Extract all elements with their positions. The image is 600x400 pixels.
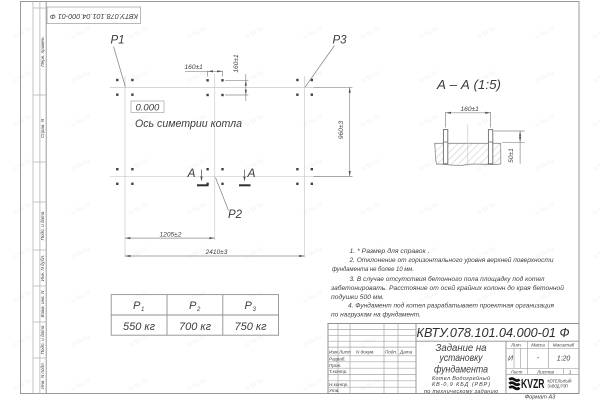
- svg-text:KVZR: KVZR: [521, 377, 545, 391]
- svg-text:А: А: [247, 166, 256, 180]
- svg-text:Инв. N дубл.: Инв. N дубл.: [40, 255, 45, 282]
- svg-text:4. Фундамент под котел разраба: 4. Фундамент под котел разрабатывает про…: [348, 302, 554, 310]
- svg-text:Т.контр.: Т.контр.: [329, 369, 348, 374]
- svg-text:750 кг: 750 кг: [234, 321, 267, 333]
- svg-text:Справ. N: Справ. N: [40, 118, 45, 138]
- svg-text:Котел Водогрейный: Котел Водогрейный: [432, 375, 490, 382]
- svg-text:забетонировать. Расстояние от: забетонировать. Расстояние от осей крайн…: [330, 284, 564, 292]
- svg-text:Утв.: Утв.: [329, 388, 339, 393]
- svg-text:P: P: [133, 300, 141, 312]
- svg-text:Перв. примен.: Перв. примен.: [40, 36, 45, 67]
- svg-text:фундамента не более 10 мм.: фундамента не более 10 мм.: [332, 265, 414, 273]
- svg-text:550 кг: 550 кг: [123, 321, 156, 333]
- svg-text:0.000: 0.000: [136, 102, 160, 113]
- svg-text:1205±2: 1205±2: [160, 231, 182, 238]
- svg-text:P3: P3: [333, 35, 348, 47]
- svg-text:Взам. инв. N: Взам. инв. N: [40, 290, 45, 317]
- svg-text:Подп. и дата: Подп. и дата: [40, 325, 45, 354]
- svg-text:Лит.: Лит.: [510, 343, 522, 348]
- svg-text:КВТУ.078.101.04.000-01 Ф: КВТУ.078.101.04.000-01 Ф: [417, 326, 570, 340]
- svg-text:Лист: Лист: [338, 350, 351, 355]
- svg-text:А: А: [187, 166, 196, 180]
- svg-text:фундамента: фундамента: [434, 364, 488, 376]
- svg-text:Изм.: Изм.: [329, 350, 339, 355]
- svg-text:А – А (1:5): А – А (1:5): [436, 77, 501, 92]
- svg-text:960±3: 960±3: [338, 121, 345, 140]
- svg-text:N докум.: N докум.: [356, 350, 375, 355]
- svg-text:160±1: 160±1: [461, 106, 480, 113]
- svg-text:Н.контр.: Н.контр.: [329, 382, 348, 387]
- svg-text:P: P: [189, 300, 197, 312]
- svg-text:1:20: 1:20: [557, 356, 571, 363]
- svg-text:ЗАВОД РЭП: ЗАВОД РЭП: [548, 384, 569, 389]
- svg-text:P1: P1: [111, 35, 125, 47]
- svg-text:по нагрузкам на фундамент.: по нагрузкам на фундамент.: [331, 310, 421, 318]
- svg-text:Лист: Лист: [510, 369, 523, 374]
- svg-text:КВТУ.078.101.04.000-01 Ф: КВТУ.078.101.04.000-01 Ф: [50, 12, 138, 21]
- svg-text:1: 1: [141, 307, 144, 313]
- svg-text:1: 1: [569, 369, 572, 374]
- svg-text:2. Отклонение от горизонтально: 2. Отклонение от горизонтального уровня …: [349, 256, 554, 264]
- svg-text:КОТЕЛЬНЫЙ: КОТЕЛЬНЫЙ: [548, 378, 572, 383]
- svg-text:Разраб.: Разраб.: [329, 356, 346, 361]
- svg-text:Ось симетрии котла: Ось симетрии котла: [135, 118, 242, 130]
- svg-text:50±1: 50±1: [508, 148, 515, 163]
- svg-text:Листов: Листов: [536, 369, 554, 374]
- svg-text:Подп. и дата: Подп. и дата: [40, 211, 45, 240]
- svg-text:Масштаб: Масштаб: [553, 343, 575, 348]
- svg-text:Пров.: Пров.: [329, 363, 341, 368]
- svg-text:3. В случае отсутствия бетонно: 3. В случае отсутствия бетонного пола пл…: [350, 275, 545, 283]
- svg-text:подушки 500 мм.: подушки 500 мм.: [331, 293, 384, 301]
- svg-text:по техническому заданию: по техническому заданию: [424, 389, 498, 395]
- svg-text:Дата: Дата: [399, 350, 413, 355]
- svg-text:Формат А3: Формат А3: [525, 395, 556, 400]
- svg-text:Подп.: Подп.: [385, 350, 397, 355]
- svg-text:1. * Размер для справок .: 1. * Размер для справок .: [350, 247, 430, 255]
- svg-text:P2: P2: [228, 209, 243, 221]
- svg-text:КВ-0,9 КБД (РВР): КВ-0,9 КБД (РВР): [432, 382, 490, 388]
- svg-text:2: 2: [196, 307, 201, 313]
- svg-text:установку: установку: [439, 352, 483, 364]
- svg-text:700 кг: 700 кг: [179, 321, 212, 333]
- svg-text:2410±3: 2410±3: [205, 249, 228, 256]
- svg-text:Масса: Масса: [531, 343, 545, 348]
- svg-text:160±1: 160±1: [185, 64, 204, 71]
- svg-text:Инв. N подл.: Инв. N подл.: [40, 362, 45, 389]
- svg-text:P: P: [245, 300, 253, 312]
- svg-text:160±1: 160±1: [233, 54, 240, 73]
